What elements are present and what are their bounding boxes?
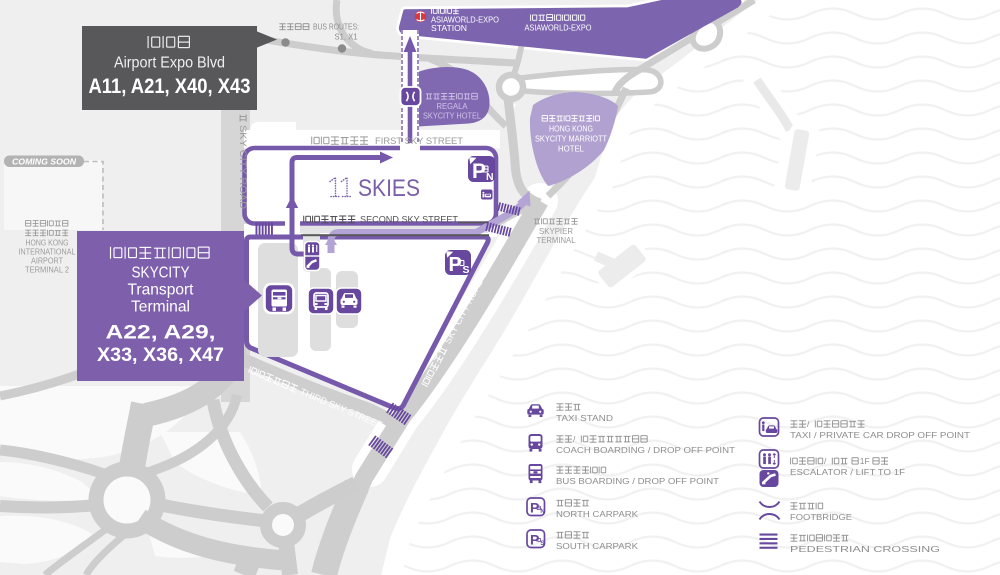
svg-text:Airport Expo Blvd: Airport Expo Blvd [114,55,225,72]
svg-text:AIRPORT: AIRPORT [31,257,63,266]
svg-text:HONG KONG: HONG KONG [549,125,593,134]
svg-text:TERMINAL: TERMINAL [537,236,576,245]
svg-text:PEDESTRIAN CROSSING: PEDESTRIAN CROSSING [790,544,940,554]
svg-text:SKIES: SKIES [358,175,420,202]
svg-text:Terminal: Terminal [131,299,190,316]
svg-text:SKYPIER: SKYPIER [539,227,573,236]
svg-text:SKYCITY: SKYCITY [132,265,190,282]
svg-text:X33, X36, X47: X33, X36, X47 [97,344,224,366]
svg-text:ASIAWORLD-EXPO: ASIAWORLD-EXPO [525,23,592,33]
svg-text:TAXI STAND: TAXI STAND [556,413,613,423]
svg-text:HOTEL: HOTEL [558,145,585,154]
svg-text:SOUTH CARPARK: SOUTH CARPARK [556,541,638,551]
svg-text:TAXI / PRIVATE CAR DROP OFF PO: TAXI / PRIVATE CAR DROP OFF POINT [790,430,971,440]
svg-text:BUS ROUTES:: BUS ROUTES: [313,22,359,32]
svg-text:FOOTBRIDGE: FOOTBRIDGE [790,512,852,522]
svg-text:TERMINAL 2: TERMINAL 2 [25,266,69,275]
svg-text:STATION: STATION [431,24,467,33]
svg-text:SECOND SKY STREET: SECOND SKY STREET [360,215,458,226]
svg-text:S1, X1: S1, X1 [335,32,358,42]
svg-text:S: S [463,264,470,276]
svg-text:1F: 1F [860,456,870,466]
svg-text:A11, A21, X40, X43: A11, A21, X40, X43 [89,75,251,98]
svg-text:SKYCITY HOTEL: SKYCITY HOTEL [423,112,481,121]
svg-text:ESCALATOR / LIFT TO 1F: ESCALATOR / LIFT TO 1F [790,467,905,477]
svg-text:SKYCITY MARRIOTT: SKYCITY MARRIOTT [535,135,607,144]
svg-text:HONG KONG: HONG KONG [26,239,69,248]
svg-text:COACH BOARDING / DROP OFF POIN: COACH BOARDING / DROP OFF POINT [556,445,736,455]
svg-text:SKY CITY ROAD: SKY CITY ROAD [238,125,248,209]
svg-text:Transport: Transport [128,282,195,299]
svg-text:INTERNATIONAL: INTERNATIONAL [19,248,77,257]
svg-text:NORTH CARPARK: NORTH CARPARK [556,509,638,519]
svg-text:FIRST SKY STREET: FIRST SKY STREET [375,135,463,146]
svg-text:COMING SOON: COMING SOON [12,158,77,167]
svg-text:BUS BOARDING / DROP OFF POINT: BUS BOARDING / DROP OFF POINT [556,476,720,486]
svg-text:REGALA: REGALA [437,102,469,111]
svg-text:N: N [540,509,544,515]
svg-text:A22, A29,: A22, A29, [106,322,216,344]
svg-text:N: N [486,171,494,183]
svg-text:S: S [540,541,544,547]
svg-text:ASIAWORLD-EXPO: ASIAWORLD-EXPO [431,15,499,24]
